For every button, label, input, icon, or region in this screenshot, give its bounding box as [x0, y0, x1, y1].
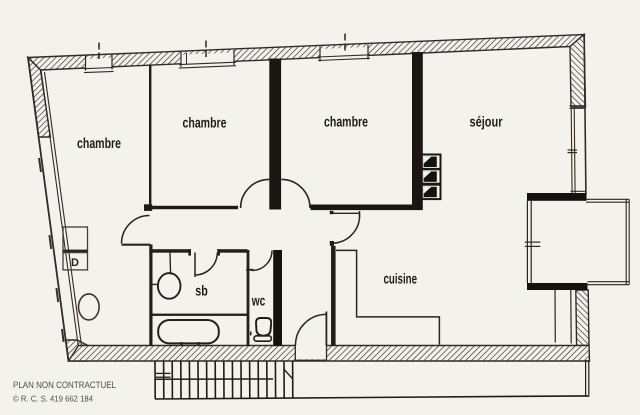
- svg-text:chambre: chambre: [183, 116, 227, 132]
- svg-text:chambre: chambre: [77, 136, 121, 152]
- svg-text:© R. C. S. 419 662 184: © R. C. S. 419 662 184: [13, 394, 93, 404]
- svg-text:sb: sb: [195, 284, 208, 300]
- svg-text:wc: wc: [251, 294, 265, 310]
- svg-text:chambre: chambre: [324, 114, 368, 130]
- svg-text:cuisine: cuisine: [384, 272, 418, 288]
- svg-text:séjour: séjour: [470, 115, 503, 131]
- svg-text:D: D: [71, 257, 79, 269]
- svg-text:PLAN NON CONTRACTUEL: PLAN NON CONTRACTUEL: [13, 380, 116, 390]
